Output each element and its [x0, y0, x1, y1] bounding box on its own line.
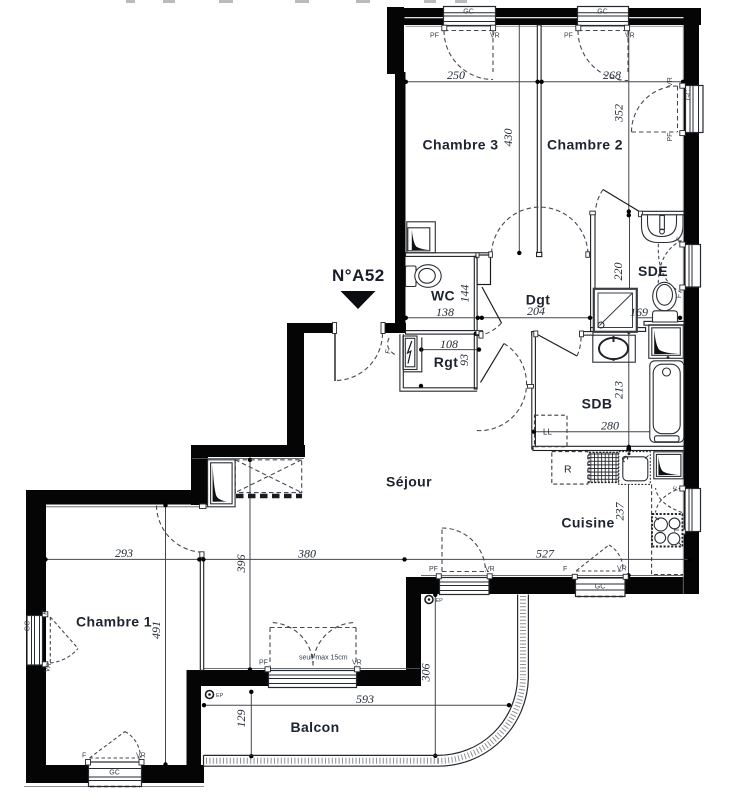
svg-text:GC: GC [597, 9, 608, 16]
svg-text:T: T [674, 527, 681, 532]
svg-text:396: 396 [234, 555, 248, 574]
svg-text:250: 250 [447, 68, 465, 82]
svg-text:Chambre 1: Chambre 1 [76, 614, 152, 630]
svg-text:SDE: SDE [638, 263, 668, 279]
svg-text:LL: LL [543, 428, 552, 437]
svg-text:Cuisine: Cuisine [561, 515, 614, 531]
svg-text:Balcon: Balcon [290, 719, 339, 735]
svg-text:293: 293 [115, 546, 133, 560]
svg-text:VR: VR [617, 566, 627, 573]
svg-text:PF: PF [667, 133, 674, 142]
svg-text:VR: VR [352, 660, 362, 667]
svg-text:Rgt: Rgt [434, 354, 459, 370]
svg-text:Chambre 3: Chambre 3 [423, 137, 499, 153]
svg-text:N°A52: N°A52 [332, 266, 385, 285]
svg-text:PF: PF [429, 566, 438, 573]
svg-text:Chambre 2: Chambre 2 [547, 137, 623, 153]
svg-text:GC: GC [595, 584, 606, 591]
svg-text:593: 593 [356, 692, 374, 706]
svg-text:GC: GC [109, 770, 120, 777]
svg-text:108: 108 [440, 337, 458, 351]
svg-text:280: 280 [601, 419, 619, 433]
svg-text:EP: EP [436, 598, 444, 604]
svg-text:213: 213 [612, 381, 626, 399]
svg-text:352: 352 [612, 104, 626, 123]
svg-text:SDB: SDB [582, 396, 613, 412]
svg-text:Séjour: Séjour [386, 474, 432, 490]
svg-text:EP: EP [216, 693, 224, 699]
svg-text:PF: PF [564, 33, 573, 40]
svg-text:VR: VR [667, 77, 674, 87]
svg-text:GC: GC [463, 9, 474, 16]
svg-text:491: 491 [149, 621, 163, 639]
svg-text:220: 220 [611, 263, 625, 281]
svg-text:VR: VR [136, 753, 146, 760]
svg-text:VR: VR [625, 33, 635, 40]
svg-text:F: F [82, 753, 86, 760]
svg-text:VR: VR [485, 566, 495, 573]
svg-text:PF: PF [430, 33, 439, 40]
svg-text:204: 204 [527, 304, 545, 318]
svg-text:380: 380 [297, 547, 316, 561]
svg-text:138: 138 [436, 305, 454, 319]
svg-text:F: F [563, 566, 567, 573]
svg-text:R: R [564, 464, 572, 476]
svg-text:306: 306 [419, 664, 433, 683]
svg-text:seuil max 15cm: seuil max 15cm [299, 655, 348, 662]
svg-text:93: 93 [457, 354, 471, 366]
svg-text:VR: VR [490, 33, 500, 40]
svg-text:PF: PF [259, 660, 268, 667]
svg-text:GC: GC [25, 621, 32, 632]
svg-text:GC: GC [686, 90, 693, 101]
svg-text:527: 527 [536, 547, 555, 561]
svg-text:169: 169 [630, 305, 648, 319]
svg-text:144: 144 [458, 285, 472, 303]
svg-text:F: F [676, 294, 683, 298]
svg-text:WC: WC [431, 288, 455, 304]
svg-text:268: 268 [603, 68, 621, 82]
svg-text:430: 430 [501, 129, 515, 147]
svg-text:237: 237 [613, 502, 627, 521]
svg-text:129: 129 [234, 710, 248, 728]
